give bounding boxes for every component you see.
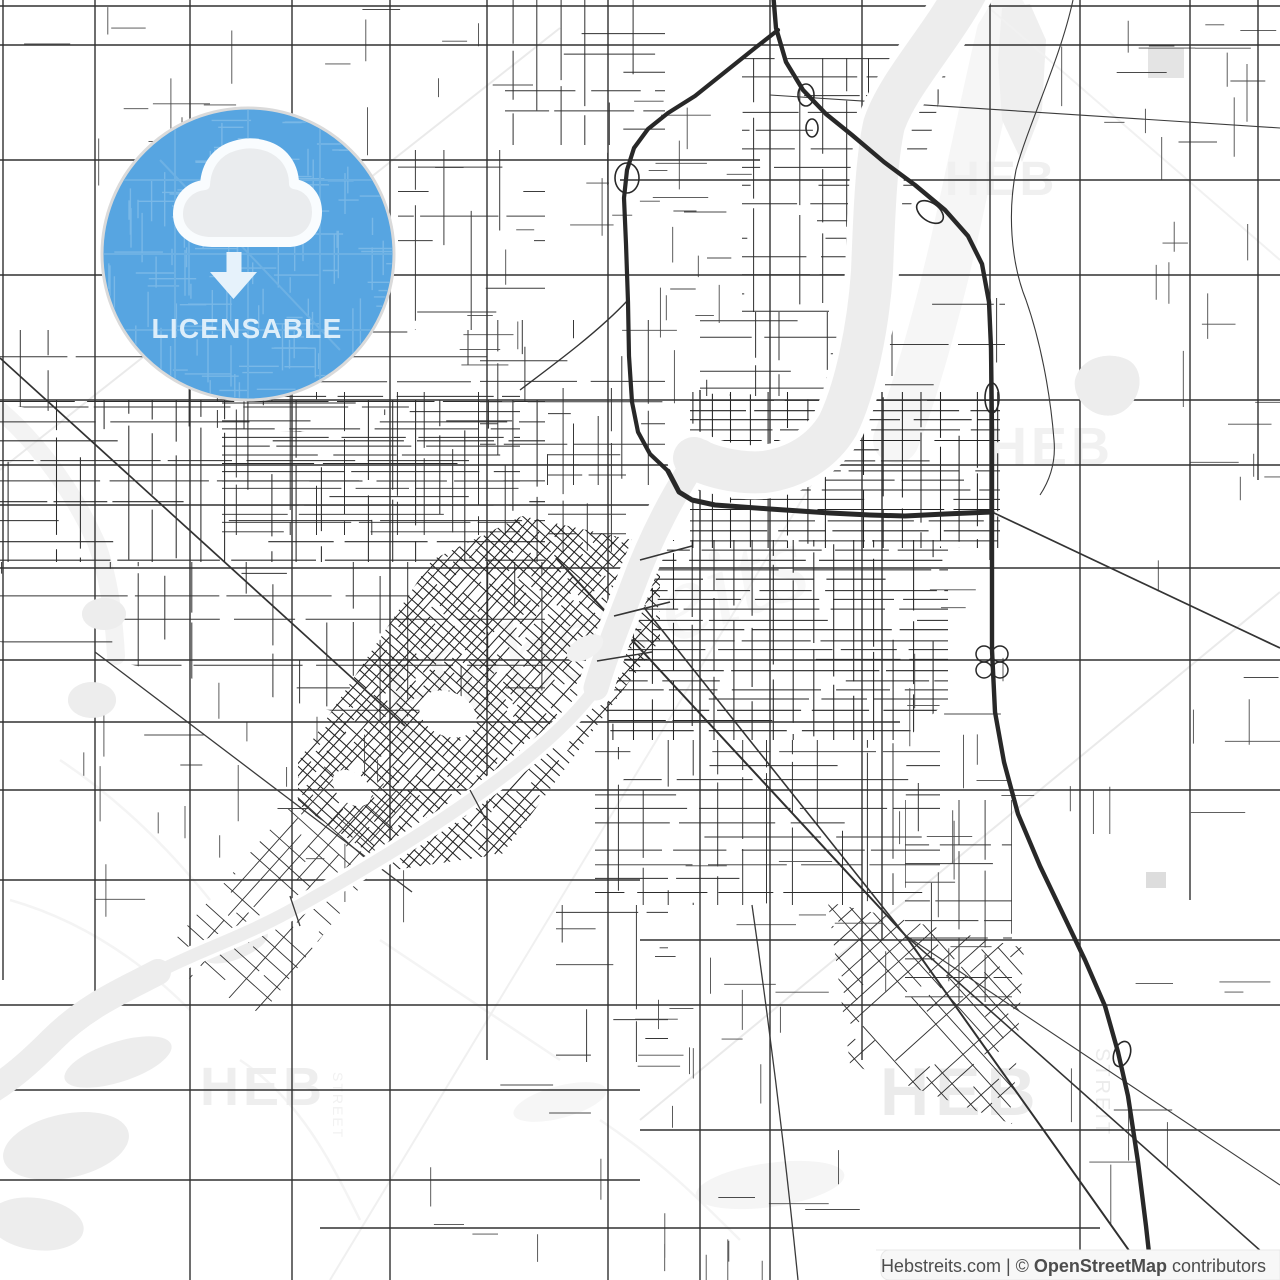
svg-text:HEB: HEB: [200, 1057, 326, 1117]
svg-text:Hebstreits.com | © OpenStreetM: Hebstreits.com | © OpenStreetMap contrib…: [881, 1256, 1266, 1276]
svg-text:LICENSABLE: LICENSABLE: [152, 313, 343, 344]
svg-text:HEB: HEB: [988, 417, 1114, 477]
svg-text:STREET: STREET: [330, 1072, 346, 1139]
